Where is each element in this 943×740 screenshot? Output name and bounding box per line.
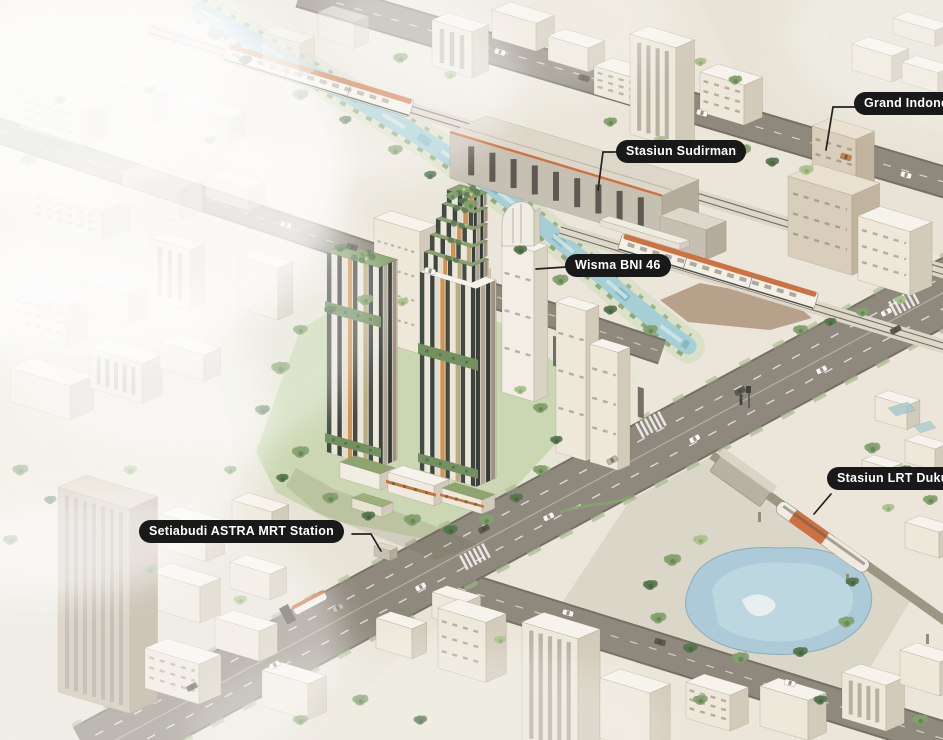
map-label-text: Setiabudi ASTRA MRT Station bbox=[149, 524, 334, 538]
map-label-text: Stasiun Sudirman bbox=[626, 144, 736, 158]
map-label-text: Wisma BNI 46 bbox=[575, 258, 661, 272]
map-label-stasiun-sudirman: Stasiun Sudirman bbox=[616, 140, 746, 163]
map-label-text: Grand Indonesia bbox=[864, 96, 943, 110]
map-label-setiabudi-astra-mrt-station: Setiabudi ASTRA MRT Station bbox=[139, 520, 344, 543]
watercolor-wash-layer bbox=[0, 0, 943, 740]
map-label-stasiun-lrt-dukuh-atas: Stasiun LRT Dukuh Atas bbox=[827, 467, 943, 490]
map-label-wisma-bni-46: Wisma BNI 46 bbox=[565, 254, 671, 277]
illustration-canvas bbox=[0, 0, 943, 740]
map-label-text: Stasiun LRT Dukuh Atas bbox=[837, 471, 943, 485]
city-map-illustration: Stasiun Sudirman Grand Indonesia Wisma B… bbox=[0, 0, 943, 740]
map-label-grand-indonesia: Grand Indonesia bbox=[854, 92, 943, 115]
